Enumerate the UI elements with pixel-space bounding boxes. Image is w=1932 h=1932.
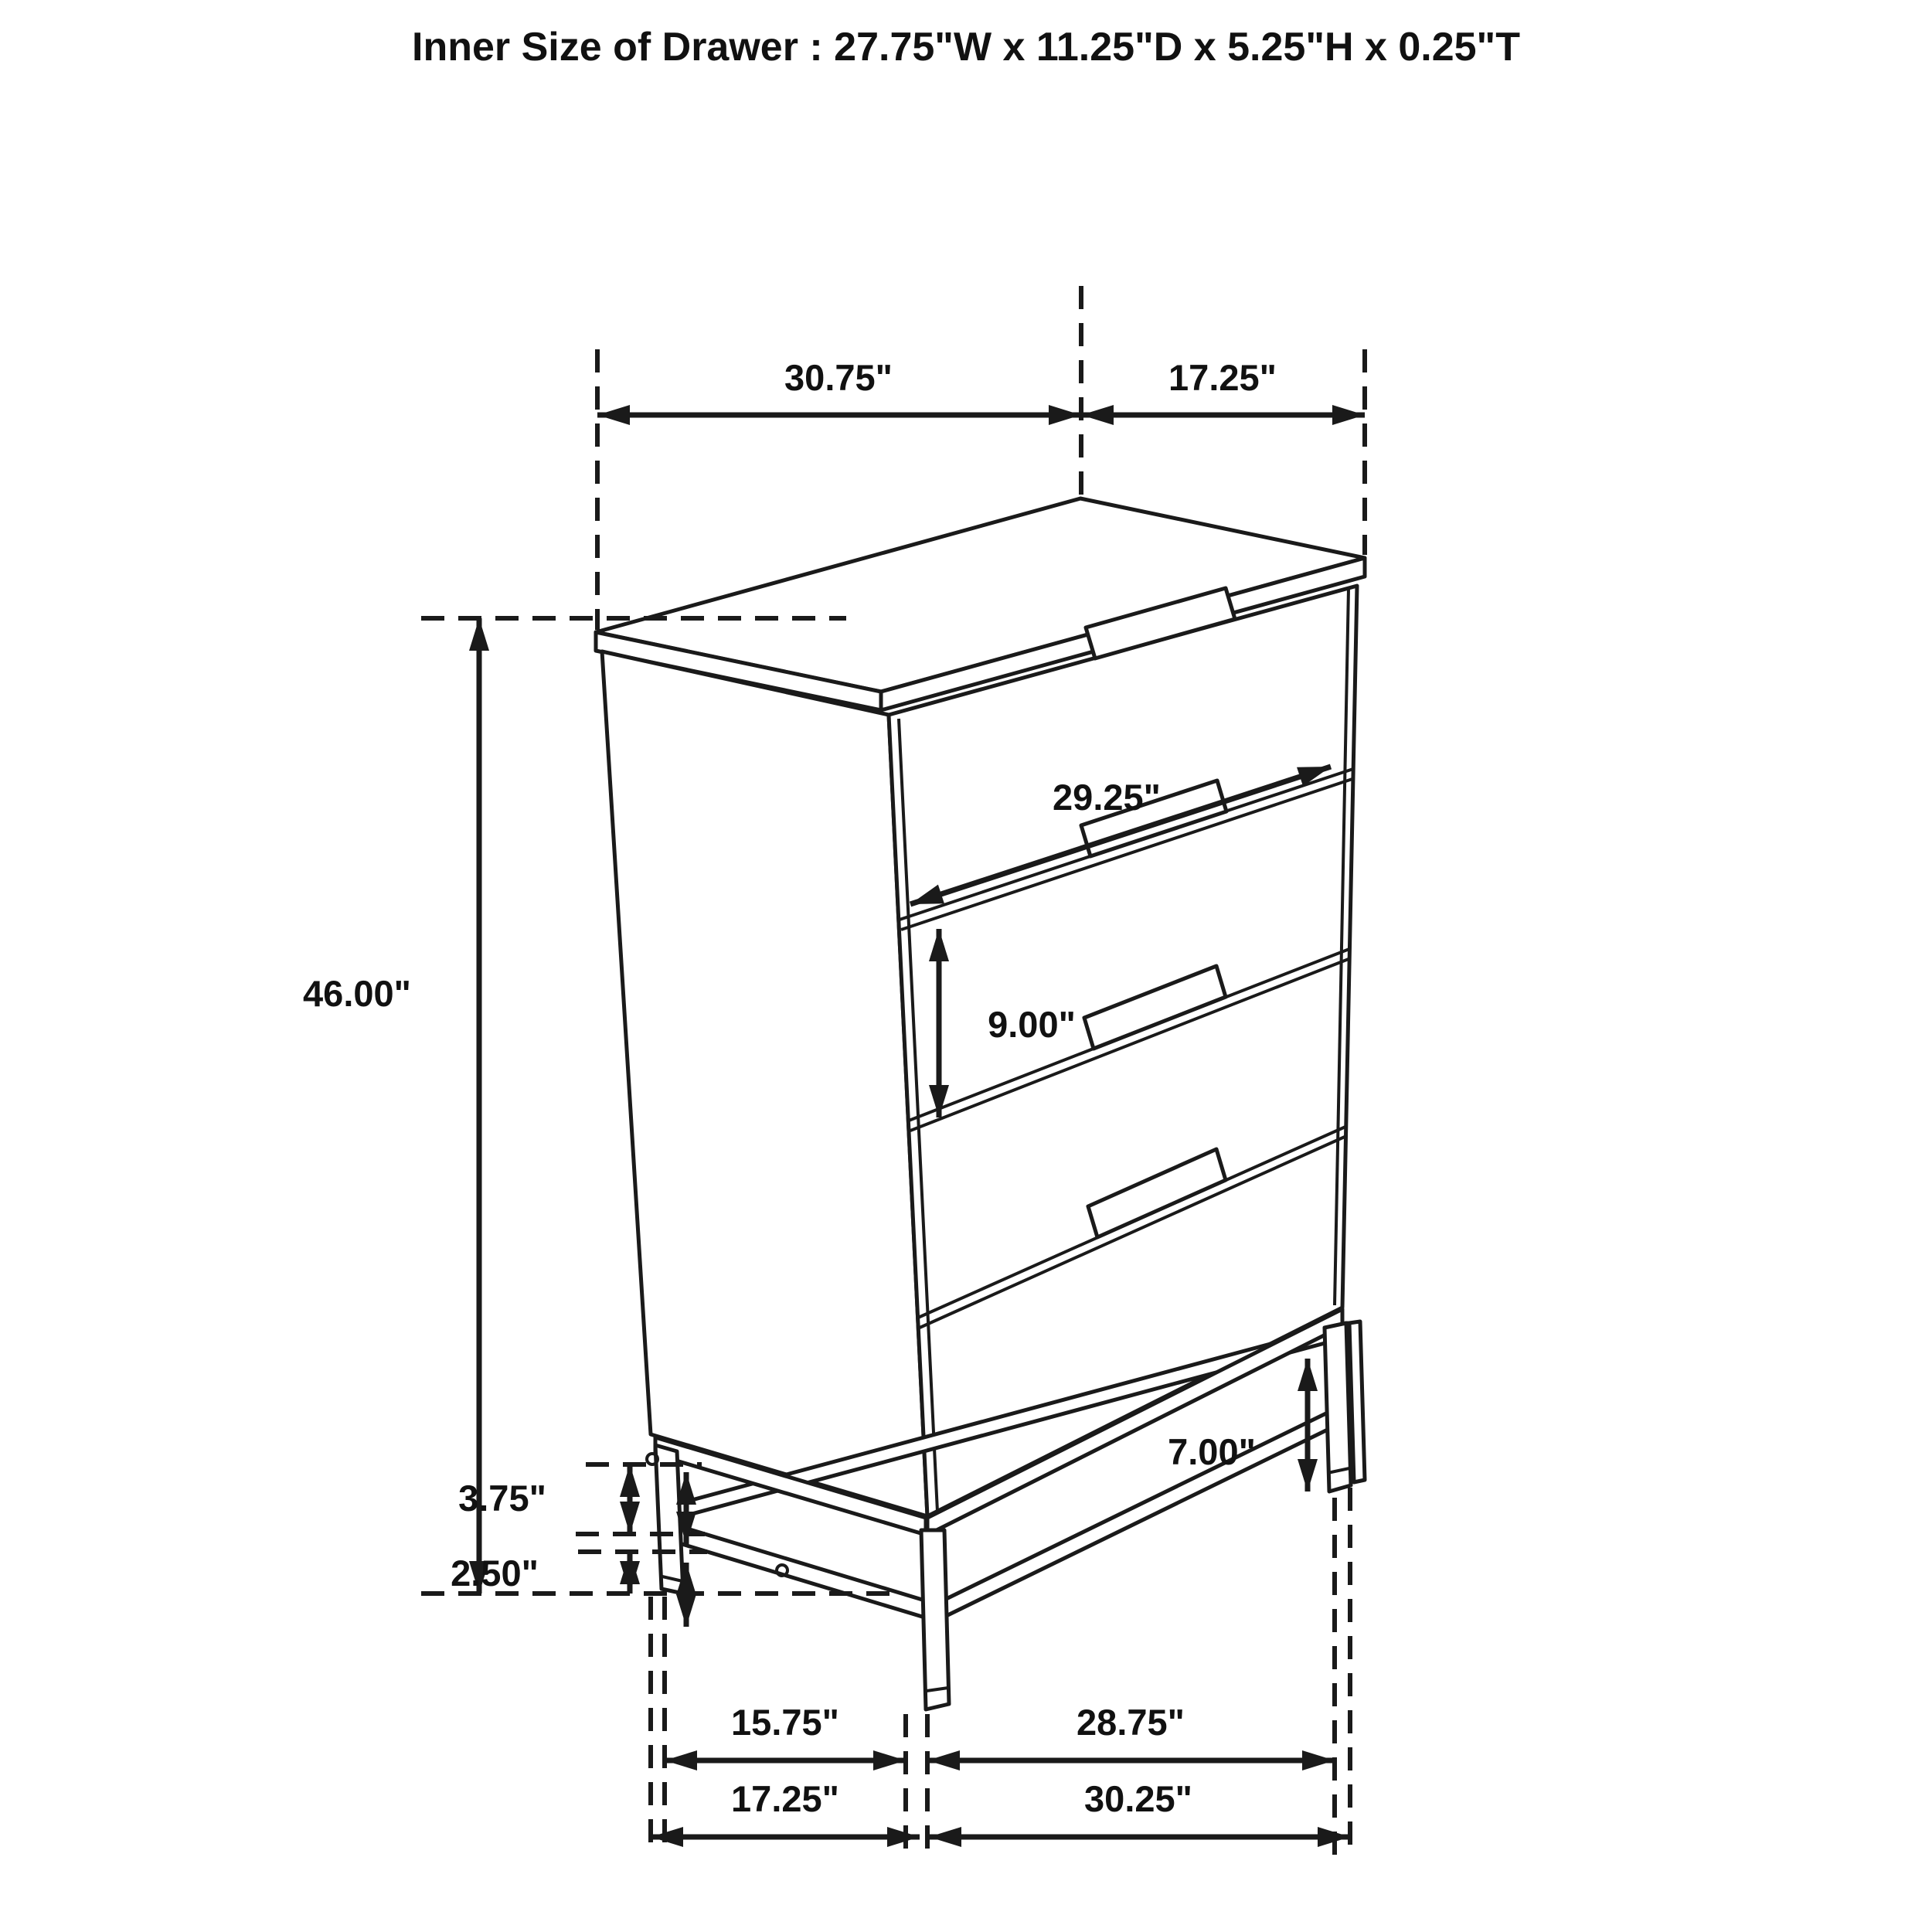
dim-label-base-inner-width: 28.75" — [1077, 1702, 1185, 1743]
dim-label-base-outer-width: 30.25" — [1084, 1778, 1192, 1819]
base-leg-front-center — [921, 1530, 949, 1709]
dimension-bottom: 15.75" 28.75" 17.25" 30.25" — [651, 1488, 1350, 1855]
base-leg-rear-left — [655, 1445, 683, 1594]
dim-label-leg-height: 7.00" — [1168, 1431, 1256, 1472]
cabinet-front-face — [889, 586, 1357, 1516]
dimension-diagram: Inner Size of Drawer : 27.75"W x 11.25"D… — [0, 0, 1932, 1932]
dim-label-top-depth: 17.25" — [1168, 357, 1277, 398]
dim-label-stretcher-height: 2.50" — [451, 1553, 539, 1594]
base-leg-rear-right — [1349, 1321, 1365, 1482]
chest-dimension-drawing: Inner Size of Drawer : 27.75"W x 11.25"D… — [0, 0, 1932, 1932]
base-leg-front-right — [1325, 1323, 1351, 1492]
dim-label-rail-height: 3.75" — [458, 1478, 546, 1519]
dim-label-overall-height: 46.00" — [303, 973, 411, 1014]
page-title: Inner Size of Drawer : 27.75"W x 11.25"D… — [412, 25, 1520, 70]
dim-label-drawer-height: 9.00" — [988, 1004, 1076, 1045]
dim-label-top-width: 30.75" — [784, 357, 893, 398]
cabinet-left-side — [602, 651, 927, 1516]
dim-label-base-outer-depth: 17.25" — [731, 1778, 839, 1819]
dim-label-drawer-width: 29.25" — [1053, 777, 1161, 818]
dim-label-base-inner-depth: 15.75" — [731, 1702, 839, 1743]
